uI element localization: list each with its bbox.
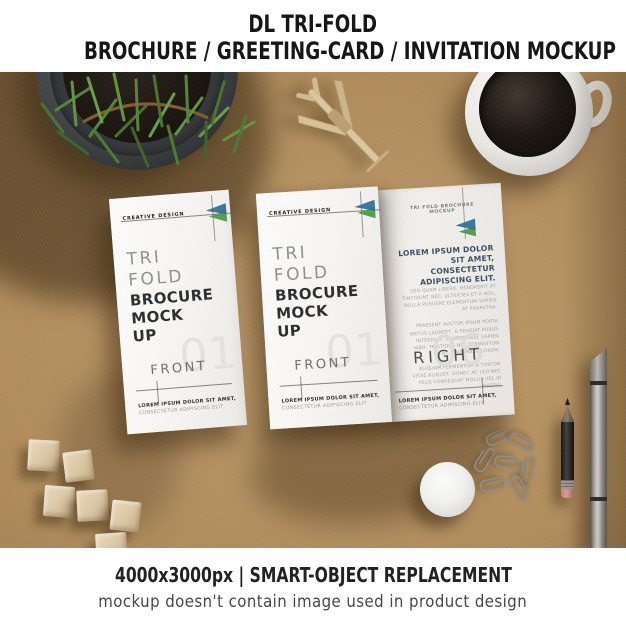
brochure-open: TRI FOLD BROCHURE MOCKUP LOREM IPSUM DOL… [256,179,518,436]
rule-line [280,380,378,387]
wood-cube [27,439,60,472]
brochure-inside-right: TRI FOLD BROCHURE MOCKUP LOREM IPSUM DOL… [375,183,515,422]
paperclip-icon [519,451,541,486]
wood-cube [43,485,75,518]
rule-line [136,383,232,392]
footer-line-1: 4000x3000px | SMART-OBJECT REPLACEMENT [115,563,512,587]
coffee-surface [479,72,576,157]
craft-knife [590,348,607,548]
wood-cube [110,500,142,533]
brand-label: CREATIVE DESIGN [269,207,331,217]
brand-triangle-logo-icon [347,199,376,222]
wood-cube [95,532,128,548]
title-line-2: BROCHURE / GREETING-CARD / INVITATION MO… [84,38,616,65]
header: DL TRI-FOLD BROCHURE / GREETING-CARD / I… [0,0,626,72]
pencil-ferrule [561,480,574,489]
pencil-eraser [561,489,574,498]
title-line-1: DL TRI-FOLD [249,11,378,38]
pencil-tip [561,405,574,422]
mockup-preview-page: DL TRI-FOLD BROCHURE / GREETING-CARD / I… [0,0,626,626]
paperclip-icon [491,454,524,473]
mockup-photo: CREATIVE DESIGN TRI FOLD BROCURE MOCK UP… [0,72,626,548]
inside-heading: LOREM IPSUM DOLOR SIT AMET, CONSECTETUR … [387,243,496,289]
inside-paragraph: SED QUAM LIBERO, HENDRERIT AT TINCIDUNT … [401,283,498,317]
pencil-body [561,422,574,480]
brand-label: CREATIVE DESIGN [122,211,184,222]
plant-leaves [28,72,264,182]
knife-blade [590,348,607,381]
brochure-front-middle: CREATIVE DESIGN TRI FOLD BROCURE MOCK UP… [256,186,392,429]
brand-triangle-logo-icon [199,202,229,225]
wood-cube [62,449,94,482]
knife-handle [590,385,607,497]
toy-airplane [286,72,406,190]
card-footnote: LOREM IPSUM DOLOR SIT AMET, CONSECTETUR … [138,395,238,418]
brochure-front-left: CREATIVE DESIGN TRI FOLD BROCURE MOCK UP… [109,190,247,435]
wood-cube [76,489,109,522]
knife-handle [590,501,607,548]
card-footnote: LOREM IPSUM DOLOR SIT AMET, CONSECTETUR … [281,391,383,412]
mug-body [465,72,593,176]
footer: 4000x3000px | SMART-OBJECT REPLACEMENT m… [0,548,626,626]
pencil-lead [565,398,570,405]
pencil [561,398,574,504]
footer-line-2-text: mockup doesn't contain image used in pro… [99,592,528,612]
paper-clips [466,422,556,522]
coffee-mug [465,72,595,180]
footer-line-2: mockup doesn't contain image used in pro… [0,592,626,612]
brand-triangle-logo-icon [450,216,478,240]
inside-header: TRI FOLD BROCHURE MOCKUP [400,202,484,217]
